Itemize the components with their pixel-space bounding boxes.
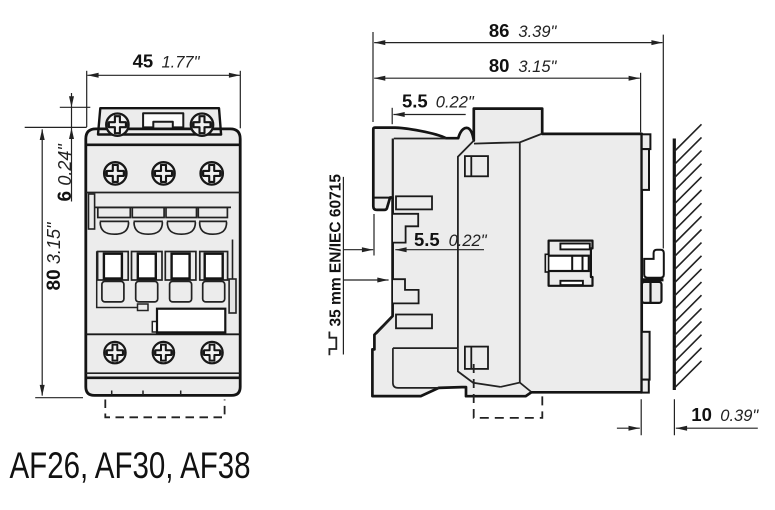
svg-text:1.77": 1.77" xyxy=(162,54,201,72)
svg-text:3.15": 3.15" xyxy=(518,58,557,76)
svg-text:5.5: 5.5 xyxy=(414,229,440,250)
svg-text:0.39": 0.39" xyxy=(720,407,759,425)
svg-text:5.5: 5.5 xyxy=(402,91,428,112)
svg-text:3.39": 3.39" xyxy=(518,23,557,41)
svg-text:AF26, AF30, AF38: AF26, AF30, AF38 xyxy=(10,445,251,487)
svg-text:0.22": 0.22" xyxy=(449,232,488,250)
svg-text:6 0.24": 6 0.24" xyxy=(55,143,76,202)
svg-text:35 mm EN/IEC 60715: 35 mm EN/IEC 60715 xyxy=(328,174,345,327)
svg-text:80 3.15": 80 3.15" xyxy=(44,221,65,290)
svg-text:10: 10 xyxy=(691,404,712,425)
svg-text:86: 86 xyxy=(489,20,510,41)
svg-text:45: 45 xyxy=(133,51,154,72)
svg-text:80: 80 xyxy=(489,55,510,76)
svg-text:0.22": 0.22" xyxy=(436,94,475,112)
